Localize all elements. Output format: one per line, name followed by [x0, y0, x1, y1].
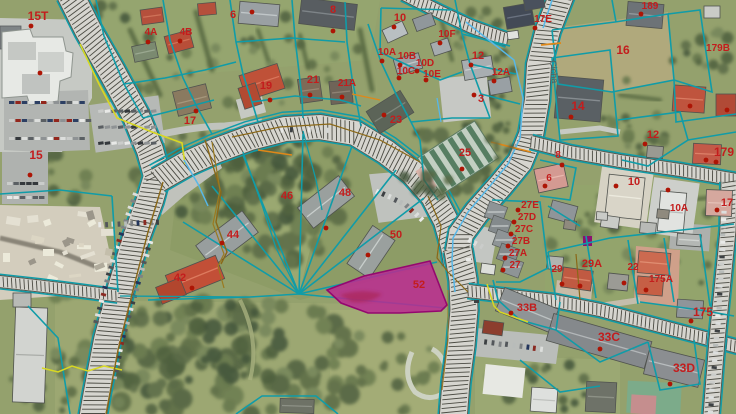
svg-text:50: 50 — [390, 229, 402, 241]
svg-text:175A: 175A — [649, 274, 673, 285]
svg-text:27E: 27E — [521, 200, 539, 211]
svg-text:21A: 21A — [338, 78, 356, 89]
svg-text:23: 23 — [390, 114, 402, 126]
svg-text:33D: 33D — [673, 361, 695, 375]
svg-text:22: 22 — [627, 262, 639, 273]
svg-text:10: 10 — [628, 176, 640, 188]
svg-text:6: 6 — [546, 173, 552, 184]
svg-text:12A: 12A — [492, 67, 510, 78]
svg-text:179: 179 — [714, 145, 734, 159]
svg-text:29: 29 — [551, 264, 563, 275]
svg-text:10C: 10C — [397, 66, 415, 77]
svg-text:16: 16 — [616, 43, 630, 57]
svg-text:21: 21 — [307, 74, 319, 86]
svg-text:8: 8 — [330, 4, 336, 16]
svg-text:33B: 33B — [517, 302, 537, 314]
svg-text:179B: 179B — [706, 43, 730, 54]
svg-text:8: 8 — [555, 150, 561, 161]
svg-text:27C: 27C — [515, 224, 533, 235]
svg-text:10A: 10A — [378, 47, 396, 58]
svg-text:4A: 4A — [145, 27, 158, 38]
svg-text:27A: 27A — [509, 248, 527, 259]
svg-text:10D: 10D — [416, 58, 434, 69]
svg-text:19: 19 — [260, 80, 272, 92]
svg-text:27B: 27B — [512, 236, 530, 247]
svg-text:10F: 10F — [438, 29, 455, 40]
svg-text:29A: 29A — [582, 258, 602, 270]
svg-text:17: 17 — [721, 197, 733, 209]
svg-text:17E: 17E — [534, 14, 552, 25]
svg-text:12: 12 — [472, 50, 484, 62]
svg-text:17: 17 — [184, 115, 196, 127]
svg-text:Cicha: Cicha — [548, 60, 560, 84]
svg-text:48: 48 — [339, 187, 351, 199]
svg-text:3: 3 — [478, 93, 484, 105]
svg-text:42: 42 — [174, 272, 186, 284]
svg-text:52: 52 — [413, 279, 425, 291]
svg-text:10: 10 — [394, 12, 406, 24]
svg-text:44: 44 — [227, 229, 240, 241]
svg-text:25: 25 — [459, 147, 471, 159]
svg-text:15: 15 — [29, 148, 43, 162]
svg-text:189: 189 — [642, 1, 659, 12]
svg-text:175: 175 — [693, 305, 713, 319]
svg-text:10B: 10B — [398, 51, 416, 62]
svg-text:4B: 4B — [180, 27, 193, 38]
svg-text:15T: 15T — [28, 9, 49, 23]
svg-text:10A: 10A — [670, 203, 688, 214]
svg-text:46: 46 — [281, 190, 293, 202]
svg-text:27: 27 — [509, 260, 521, 271]
svg-text:6: 6 — [230, 9, 236, 21]
svg-text:12: 12 — [647, 129, 659, 141]
svg-text:14: 14 — [571, 99, 585, 113]
svg-text:33C: 33C — [598, 330, 620, 344]
svg-text:27D: 27D — [518, 212, 536, 223]
